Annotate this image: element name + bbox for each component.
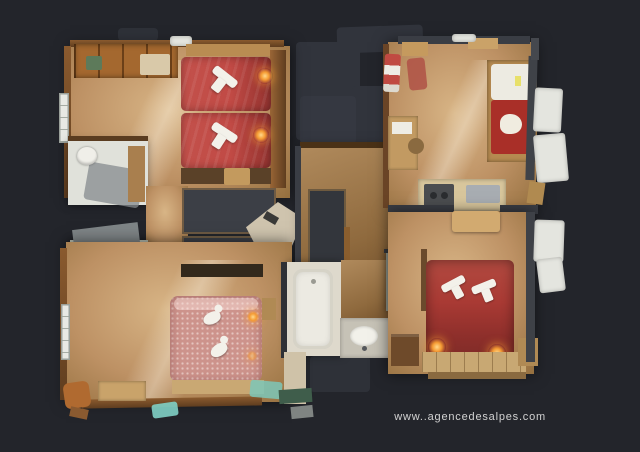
white-fixture — [533, 87, 563, 132]
white-fixture — [536, 257, 566, 294]
agency-watermark: www..agencedesalpes.com — [394, 411, 546, 423]
wood-item — [527, 181, 546, 205]
right-unit — [0, 0, 640, 452]
floorplan-image: www..agencedesalpes.com — [0, 0, 640, 452]
white-fixture — [533, 133, 569, 184]
right-edge-objects — [0, 0, 640, 452]
